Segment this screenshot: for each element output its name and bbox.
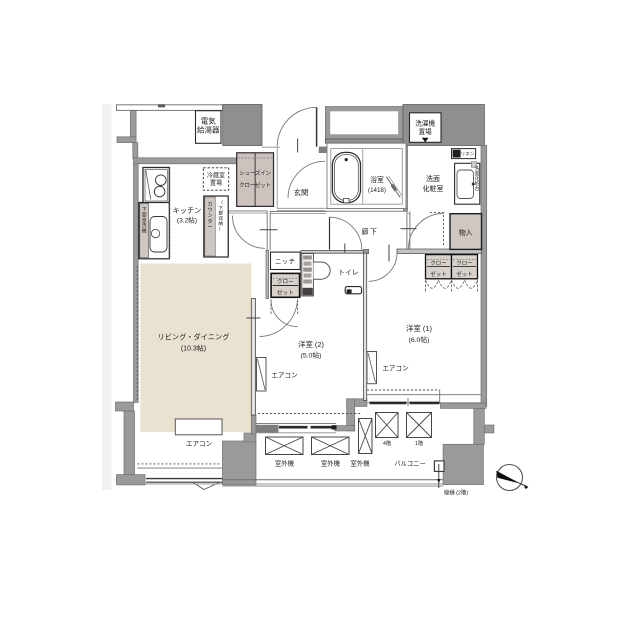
svg-text:キッチン: キッチン (173, 206, 202, 215)
svg-text:下: 下 (142, 207, 147, 213)
svg-text:(3.2帖): (3.2帖) (177, 216, 197, 225)
svg-text:浴室: 浴室 (370, 175, 384, 184)
svg-text:4階: 4階 (383, 439, 391, 447)
svg-text:(10.3帖): (10.3帖) (181, 344, 206, 353)
svg-text:冷蔵室: 冷蔵室 (207, 172, 225, 180)
svg-text:クロー: クロー (430, 260, 446, 267)
svg-text:エアコン: エアコン (186, 440, 213, 448)
svg-text:クロー: クロー (277, 278, 294, 285)
svg-text:トイレ: トイレ (338, 270, 359, 277)
svg-text:(6.0帖): (6.0帖) (409, 335, 430, 344)
svg-text:玄関: 玄関 (294, 188, 309, 197)
svg-text:置場: 置場 (210, 179, 222, 187)
svg-text:下: 下 (218, 205, 223, 211)
svg-text:ニッチ: ニッチ (275, 258, 296, 266)
svg-text:クローゼット: クローゼット (239, 181, 271, 189)
svg-text:ゼット: ゼット (277, 289, 294, 297)
svg-text:1階: 1階 (415, 439, 423, 447)
svg-text:食: 食 (142, 217, 147, 224)
svg-text:納: 納 (218, 220, 223, 227)
svg-text:洗濯機: 洗濯機 (415, 119, 435, 128)
svg-text:リビング・ダイニング: リビング・ダイニング (158, 333, 230, 342)
svg-text:部: 部 (218, 210, 223, 217)
svg-text:洋室 (1): 洋室 (1) (406, 324, 432, 333)
svg-text:廊下: 廊下 (362, 227, 379, 236)
svg-text:収: 収 (218, 215, 223, 222)
svg-text:室外機: 室外機 (275, 459, 295, 468)
svg-text:給湯器: 給湯器 (197, 125, 220, 135)
svg-text:台: 台 (475, 185, 480, 192)
svg-text:(1418): (1418) (368, 187, 386, 194)
svg-text:物入: 物入 (459, 228, 473, 237)
svg-text:エアコン: エアコン (271, 372, 298, 380)
svg-text:洗面: 洗面 (426, 174, 440, 183)
svg-text:ゼット: ゼット (430, 270, 446, 278)
svg-text:機: 機 (142, 228, 147, 235)
svg-text:ー: ー (207, 224, 212, 230)
svg-text:洋室 (2): 洋室 (2) (298, 340, 324, 349)
svg-text:部: 部 (142, 211, 147, 218)
svg-text:ゼット: ゼット (456, 270, 472, 278)
svg-text:バルコニー: バルコニー (394, 460, 426, 468)
svg-text:〉: 〉 (218, 227, 223, 233)
svg-text:電気: 電気 (201, 116, 216, 126)
svg-text:化粧室: 化粧室 (423, 184, 444, 193)
svg-text:〈: 〈 (218, 200, 223, 206)
svg-text:クロー: クロー (456, 260, 472, 267)
svg-text:室外機: 室外機 (350, 459, 370, 468)
svg-text:洗: 洗 (142, 222, 147, 229)
svg-text:シューズイン: シューズイン (239, 169, 271, 177)
svg-text:エアコン: エアコン (382, 365, 409, 373)
svg-text:(5.0帖): (5.0帖) (301, 351, 322, 360)
svg-text:置場: 置場 (419, 127, 433, 136)
svg-text:室外機: 室外機 (321, 459, 341, 468)
svg-text:縦樋 (2階): 縦樋 (2階) (444, 489, 468, 497)
